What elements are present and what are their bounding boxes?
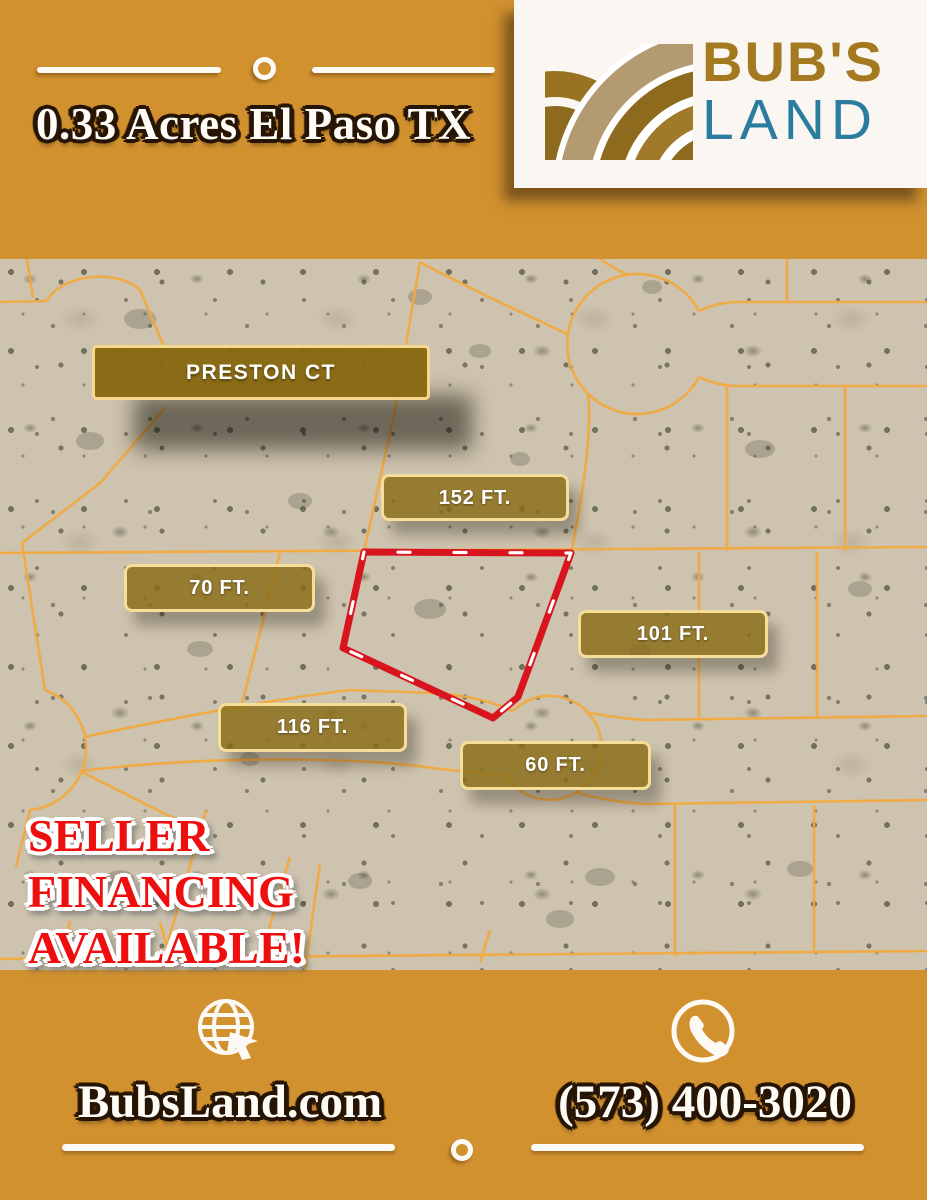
- promo-line-3: AVAILABLE!: [28, 920, 305, 976]
- promo-line-2: FINANCING: [28, 864, 305, 920]
- phone-number: (573) 400-3020: [510, 1075, 900, 1129]
- dimension-label-60ft: 60 FT.: [460, 741, 651, 790]
- seller-financing-banner: SELLER FINANCING AVAILABLE!: [28, 808, 305, 976]
- promo-line-1: SELLER: [28, 808, 305, 864]
- listing-title: 0.33 Acres El Paso TX: [36, 98, 471, 150]
- brand-name-land: LAND: [702, 92, 884, 149]
- footer-divider-line-right: [531, 1144, 864, 1151]
- website-url: BubsLand.com: [20, 1075, 440, 1129]
- header-divider-line-right: [312, 67, 495, 73]
- brand-name: BUB'S LAND: [702, 34, 884, 149]
- street-sign-preston-ct: PRESTON CT: [92, 345, 430, 400]
- property-boundary: [343, 552, 571, 718]
- land-flyer-poster: 0.33 Acres El Paso TX BUB'S LAND: [0, 0, 927, 1200]
- dimension-label-152ft: 152 FT.: [381, 474, 569, 521]
- brand-name-bubs: BUB'S: [702, 34, 884, 90]
- header-divider-ring-icon: [253, 57, 276, 80]
- dimension-label-116ft: 116 FT.: [218, 703, 407, 752]
- footer-divider-ring-icon: [451, 1139, 473, 1161]
- dimension-label-101ft: 101 FT.: [578, 610, 768, 658]
- dimension-label-70ft: 70 FT.: [124, 564, 315, 612]
- footer-divider-line-left: [62, 1144, 395, 1151]
- header-divider-line-left: [37, 67, 221, 73]
- brand-logo-card: BUB'S LAND: [514, 0, 927, 188]
- field-rows-logo-icon: [545, 44, 693, 160]
- street-sign-label: PRESTON CT: [186, 361, 336, 384]
- globe-icon: [192, 994, 264, 1066]
- phone-icon: [669, 997, 737, 1065]
